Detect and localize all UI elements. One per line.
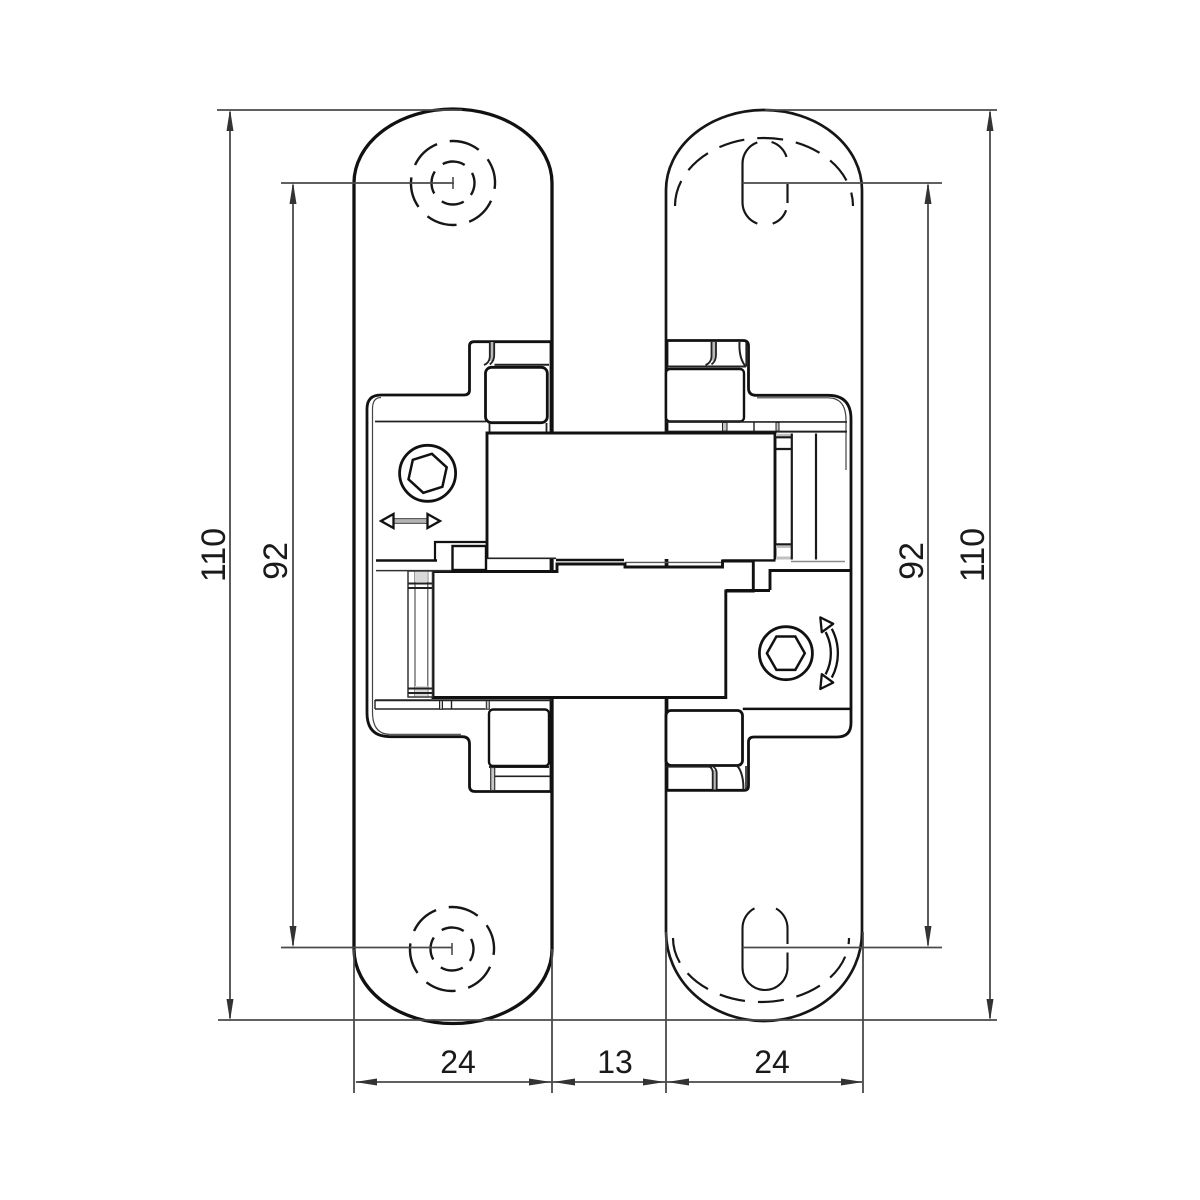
svg-text:110: 110 [954,528,992,582]
svg-text:110: 110 [195,528,233,582]
svg-text:92: 92 [893,542,931,580]
svg-text:92: 92 [257,542,295,580]
svg-text:24: 24 [754,1044,790,1080]
svg-text:13: 13 [597,1044,633,1080]
svg-text:24: 24 [440,1044,476,1080]
